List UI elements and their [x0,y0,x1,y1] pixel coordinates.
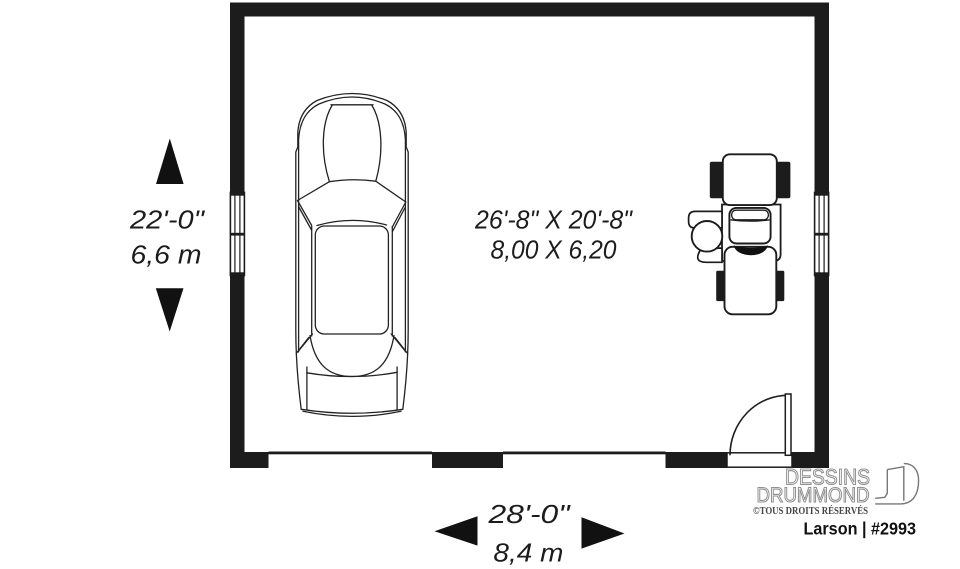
svg-text:28'-0": 28'-0" [487,499,571,529]
svg-text:Larson | #2993: Larson | #2993 [804,518,917,538]
svg-text:©TOUS DROITS RÉSERVÉS: ©TOUS DROITS RÉSERVÉS [753,505,868,517]
svg-text:DRUMMOND: DRUMMOND [757,484,870,507]
svg-text:6,6 m: 6,6 m [131,242,202,270]
svg-text:8,4 m: 8,4 m [493,538,563,568]
svg-text:8,00 X 6,20: 8,00 X 6,20 [491,237,617,265]
svg-text:26'-8" X 20'-8": 26'-8" X 20'-8" [474,207,633,235]
svg-text:22'-0": 22'-0" [129,206,205,234]
